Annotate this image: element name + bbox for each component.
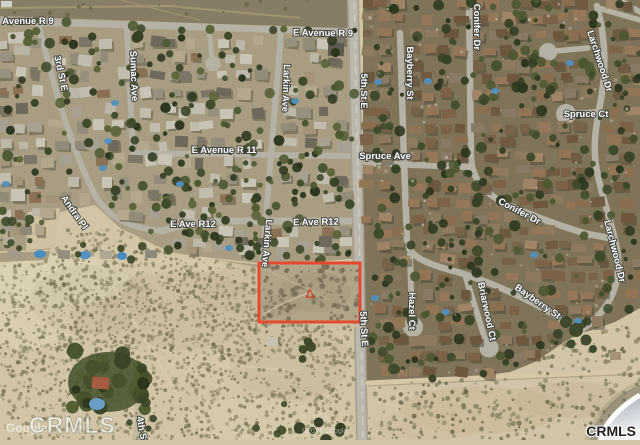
svg-text:CRMLS: CRMLS (586, 423, 636, 439)
svg-text:©2014 Google: ©2014 Google (302, 427, 347, 435)
svg-text:Bayberry St: Bayberry St (404, 46, 415, 100)
svg-text:Larkin Ave: Larkin Ave (279, 64, 292, 112)
svg-text:CRMLS: CRMLS (29, 412, 116, 438)
svg-text:E Ave R12: E Ave R12 (293, 217, 339, 229)
svg-text:5th St E: 5th St E (357, 311, 370, 347)
svg-text:E Avenue R 9: E Avenue R 9 (293, 27, 353, 39)
svg-text:Sumac Ave: Sumac Ave (127, 50, 140, 101)
svg-text:Avenue R 9: Avenue R 9 (2, 16, 53, 27)
svg-text:Spruce Ct: Spruce Ct (564, 109, 610, 120)
svg-text:Spruce Ave: Spruce Ave (359, 151, 411, 162)
svg-text:E Avenue R 11: E Avenue R 11 (192, 145, 257, 156)
svg-text:5th St E: 5th St E (358, 73, 369, 108)
svg-text:Hazel Ct: Hazel Ct (406, 292, 417, 330)
svg-text:E Ave R12: E Ave R12 (170, 219, 216, 230)
svg-text:△: △ (305, 287, 315, 299)
svg-text:Conifer Dr: Conifer Dr (471, 4, 482, 51)
